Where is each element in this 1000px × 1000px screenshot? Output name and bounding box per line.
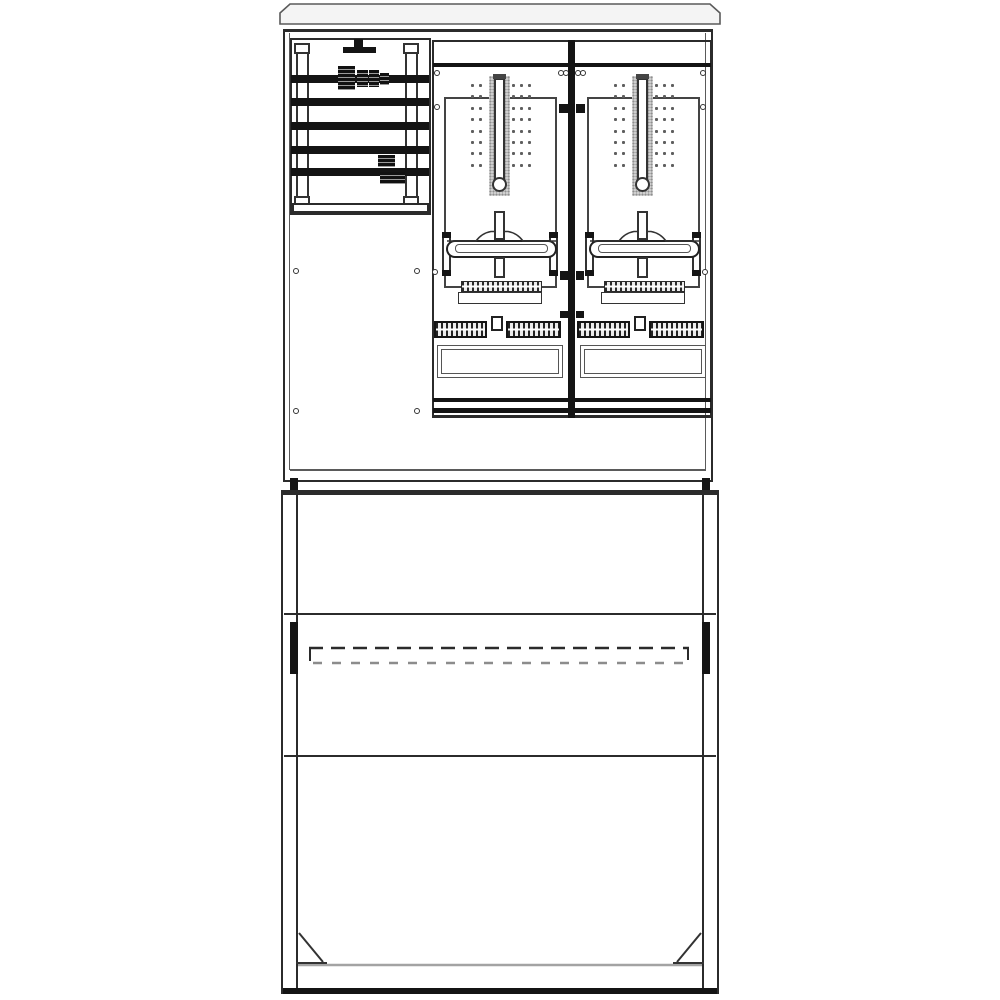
field-2-dot-r5-c3 [663, 141, 666, 144]
field-1-dot-r1-c4 [528, 95, 531, 98]
field-1-dot-r3-c0 [471, 118, 474, 121]
field-2-meter-plate-slot [598, 244, 691, 253]
screw-6 [580, 70, 586, 76]
field-1-meter-stem-top [494, 211, 505, 240]
busbar-3 [291, 122, 429, 130]
field-1-dot-r6-c3 [520, 152, 523, 155]
field-2-dot-r0-c4 [671, 84, 674, 87]
field-2-dot-r2-c0 [614, 107, 617, 110]
field-2-dot-r2-c2 [655, 107, 658, 110]
field-2-side-bracket-right-cap-bottom [692, 270, 701, 276]
field-1-terminal-hatch-strip [461, 281, 542, 292]
field-2-dot-r3-c1 [622, 118, 625, 121]
field-2-side-bracket-left-cap-bottom [585, 270, 594, 276]
field-2-dot-r1-c1 [622, 95, 625, 98]
field-2-dot-r3-c3 [663, 118, 666, 121]
field-1-dot-r7-c2 [512, 164, 515, 167]
field-2-dot-r1-c2 [655, 95, 658, 98]
field-1-dot-r5-c4 [528, 141, 531, 144]
screw-9 [293, 268, 299, 274]
field-2-slot-end-circle [635, 177, 650, 192]
meter-assembly-bottom-rail-b [433, 408, 711, 413]
field-1-dot-r4-c2 [512, 130, 515, 133]
field-2-meter-stem-bottom [637, 257, 648, 278]
field-1-side-bracket-left-cap-bottom [442, 270, 451, 276]
field-1-dot-r4-c3 [520, 130, 523, 133]
clamp-mark-1 [559, 104, 568, 113]
busbar-5 [291, 168, 429, 176]
clamp-mark-4 [576, 271, 584, 280]
field-2-dot-r3-c0 [614, 118, 617, 121]
field-2-terminal-hatch-strip [604, 281, 685, 292]
field-2-dot-r2-c4 [671, 107, 674, 110]
field-2-dot-r6-c2 [655, 152, 658, 155]
field-1-dot-r1-c2 [512, 95, 515, 98]
field-1-dot-r3-c3 [520, 118, 523, 121]
field-1-dot-r5-c2 [512, 141, 515, 144]
base-side-bracket-right [702, 622, 710, 674]
field-2-dot-r4-c4 [671, 130, 674, 133]
field-1-slot-end-circle [492, 177, 507, 192]
busbar-clamp-2-seg-2 [380, 172, 405, 184]
field-2-dot-r2-c1 [622, 107, 625, 110]
field-1-dot-r2-c4 [528, 107, 531, 110]
base-body [281, 490, 719, 994]
field-1-dot-r7-c3 [520, 164, 523, 167]
field-2-side-bracket-right-cap-top [692, 232, 701, 238]
field-1-dot-r6-c4 [528, 152, 531, 155]
field-1-channel-slot-cap [493, 74, 506, 79]
screw-13 [432, 269, 438, 275]
screw-11 [293, 408, 299, 414]
field-2-channel-slot-cap [636, 74, 649, 79]
field-1-dot-r2-c0 [471, 107, 474, 110]
field-1-dot-r3-c4 [528, 118, 531, 121]
field-2-dot-r6-c1 [622, 152, 625, 155]
field-1-meter-plate-slot [455, 244, 548, 253]
field-1-dot-r1-c0 [471, 95, 474, 98]
busbar-4 [291, 146, 429, 154]
field-1-dot-r1-c3 [520, 95, 523, 98]
field-2-dot-r3-c4 [671, 118, 674, 121]
field-1-dot-r2-c1 [479, 107, 482, 110]
field-1-dot-r1-c1 [479, 95, 482, 98]
field-2-dot-r1-c3 [663, 95, 666, 98]
field-2-dot-r5-c1 [622, 141, 625, 144]
busbar-2 [291, 98, 429, 106]
base-bottom-bar [283, 988, 717, 994]
field-2-dot-r4-c2 [655, 130, 658, 133]
field-1-dot-r0-c0 [471, 84, 474, 87]
field-2-terminal-block-b [649, 321, 704, 338]
field-2-dot-r7-c2 [655, 164, 658, 167]
field-1-dot-r7-c1 [479, 164, 482, 167]
field-1-terminal-under-box [458, 292, 542, 304]
busbar-clamp-1-seg-1 [338, 66, 355, 90]
field-1-dot-r2-c2 [512, 107, 515, 110]
field-2-dot-r5-c2 [655, 141, 658, 144]
field-2-dot-r4-c1 [622, 130, 625, 133]
field-1-dot-r0-c2 [512, 84, 515, 87]
field-2-channel-slot [637, 78, 648, 181]
clamp-mark-2 [576, 104, 585, 113]
base-divider-line-lower [284, 755, 716, 757]
field-1-meter-stem-bottom [494, 257, 505, 278]
base-inner-wall-left [296, 495, 298, 988]
field-2-dot-r0-c3 [663, 84, 666, 87]
field-2-dot-r3-c2 [655, 118, 658, 121]
field-2-dot-r5-c4 [671, 141, 674, 144]
field-1-terminal-block-a [434, 321, 487, 338]
base-divider-line-upper [284, 613, 716, 615]
screw-1 [434, 70, 440, 76]
field-2-dot-r1-c4 [671, 95, 674, 98]
field-1-dot-r6-c1 [479, 152, 482, 155]
screw-2 [434, 104, 440, 110]
drawing-canvas [0, 0, 1000, 1000]
field-2-side-bracket-left-cap-top [585, 232, 594, 238]
field-2-dot-r6-c4 [671, 152, 674, 155]
clamp-mark-3 [560, 271, 568, 280]
field-1-dot-r7-c4 [528, 164, 531, 167]
field-1-dot-r3-c2 [512, 118, 515, 121]
field-1-terminal-bracket [491, 316, 503, 331]
field-2-dot-r0-c2 [655, 84, 658, 87]
field-1-dot-r3-c1 [479, 118, 482, 121]
field-2-terminal-block-a [577, 321, 630, 338]
field-1-dot-r0-c3 [520, 84, 523, 87]
field-2-label-window-inner [584, 349, 702, 374]
field-2-dot-r7-c4 [671, 164, 674, 167]
field-1-side-bracket-left-cap-top [442, 232, 451, 238]
field-2-dot-r7-c3 [663, 164, 666, 167]
field-2-dot-r4-c0 [614, 130, 617, 133]
field-2-dot-r4-c3 [663, 130, 666, 133]
field-2-dot-r1-c0 [614, 95, 617, 98]
base-inner-wall-right [702, 495, 704, 988]
field-2-dot-r2-c3 [663, 107, 666, 110]
field-1-side-bracket-right-cap-bottom [549, 270, 558, 276]
screw-14 [702, 269, 708, 275]
field-1-side-bracket-right-cap-top [549, 232, 558, 238]
field-2-terminal-under-box [601, 292, 685, 304]
busbar-clamp-1-seg-4 [380, 73, 389, 85]
field-1-dot-r4-c0 [471, 130, 474, 133]
field-2-dot-r6-c0 [614, 152, 617, 155]
field-1-dot-r2-c3 [520, 107, 523, 110]
screw-12 [414, 408, 420, 414]
field-1-dot-r6-c0 [471, 152, 474, 155]
field-2-dot-r7-c1 [622, 164, 625, 167]
field-1-dot-r7-c0 [471, 164, 474, 167]
field-1-channel-slot [494, 78, 505, 181]
field-2-terminal-bracket [634, 316, 646, 331]
screw-10 [414, 268, 420, 274]
screw-8 [700, 104, 706, 110]
busbar-clamp-1-seg-2 [357, 70, 368, 87]
clamp-mark-6 [576, 311, 584, 318]
field-1-terminal-block-b [506, 321, 561, 338]
field-1-dot-r6-c2 [512, 152, 515, 155]
field-1-dot-r0-c1 [479, 84, 482, 87]
field-2-dot-r7-c0 [614, 164, 617, 167]
field-1-dot-r0-c4 [528, 84, 531, 87]
meter-assembly-center-divider [568, 40, 575, 418]
screw-7 [700, 70, 706, 76]
field-2-dot-r6-c3 [663, 152, 666, 155]
field-1-dot-r4-c4 [528, 130, 531, 133]
field-1-dot-r5-c3 [520, 141, 523, 144]
field-1-dot-r4-c1 [479, 130, 482, 133]
base-side-bracket-left [290, 622, 298, 674]
meter-assembly-bottom-rail-a [433, 398, 711, 402]
busbar-clamp-1-seg-3 [369, 70, 379, 87]
field-1-dot-r5-c0 [471, 141, 474, 144]
field-1-label-window-inner [441, 349, 559, 374]
field-2-dot-r0-c1 [622, 84, 625, 87]
busbar-clamp-2-seg-1 [378, 155, 395, 167]
field-2-dot-r0-c0 [614, 84, 617, 87]
field-2-dot-r5-c0 [614, 141, 617, 144]
field-2-meter-stem-top [637, 211, 648, 240]
field-1-dot-r5-c1 [479, 141, 482, 144]
clamp-mark-5 [560, 311, 568, 318]
